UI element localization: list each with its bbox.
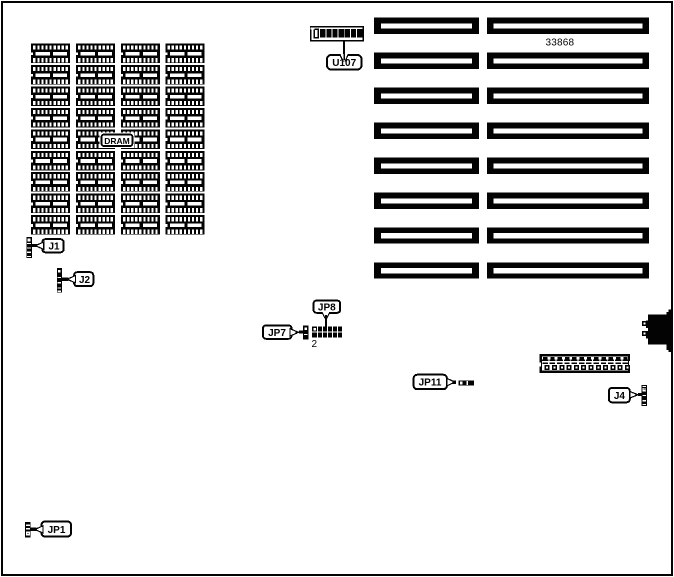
svg-text:33868: 33868	[546, 37, 575, 48]
svg-text:U107: U107	[332, 58, 356, 69]
svg-text:JP1: JP1	[48, 525, 66, 536]
svg-text:J2: J2	[79, 275, 91, 286]
svg-text:JP11: JP11	[419, 377, 442, 388]
svg-text:J1: J1	[48, 242, 60, 253]
svg-text:2: 2	[312, 339, 318, 350]
svg-text:DRAM: DRAM	[104, 136, 130, 146]
svg-text:J4: J4	[614, 391, 626, 402]
svg-text:JP8: JP8	[318, 302, 336, 313]
svg-text:JP7: JP7	[268, 328, 286, 339]
